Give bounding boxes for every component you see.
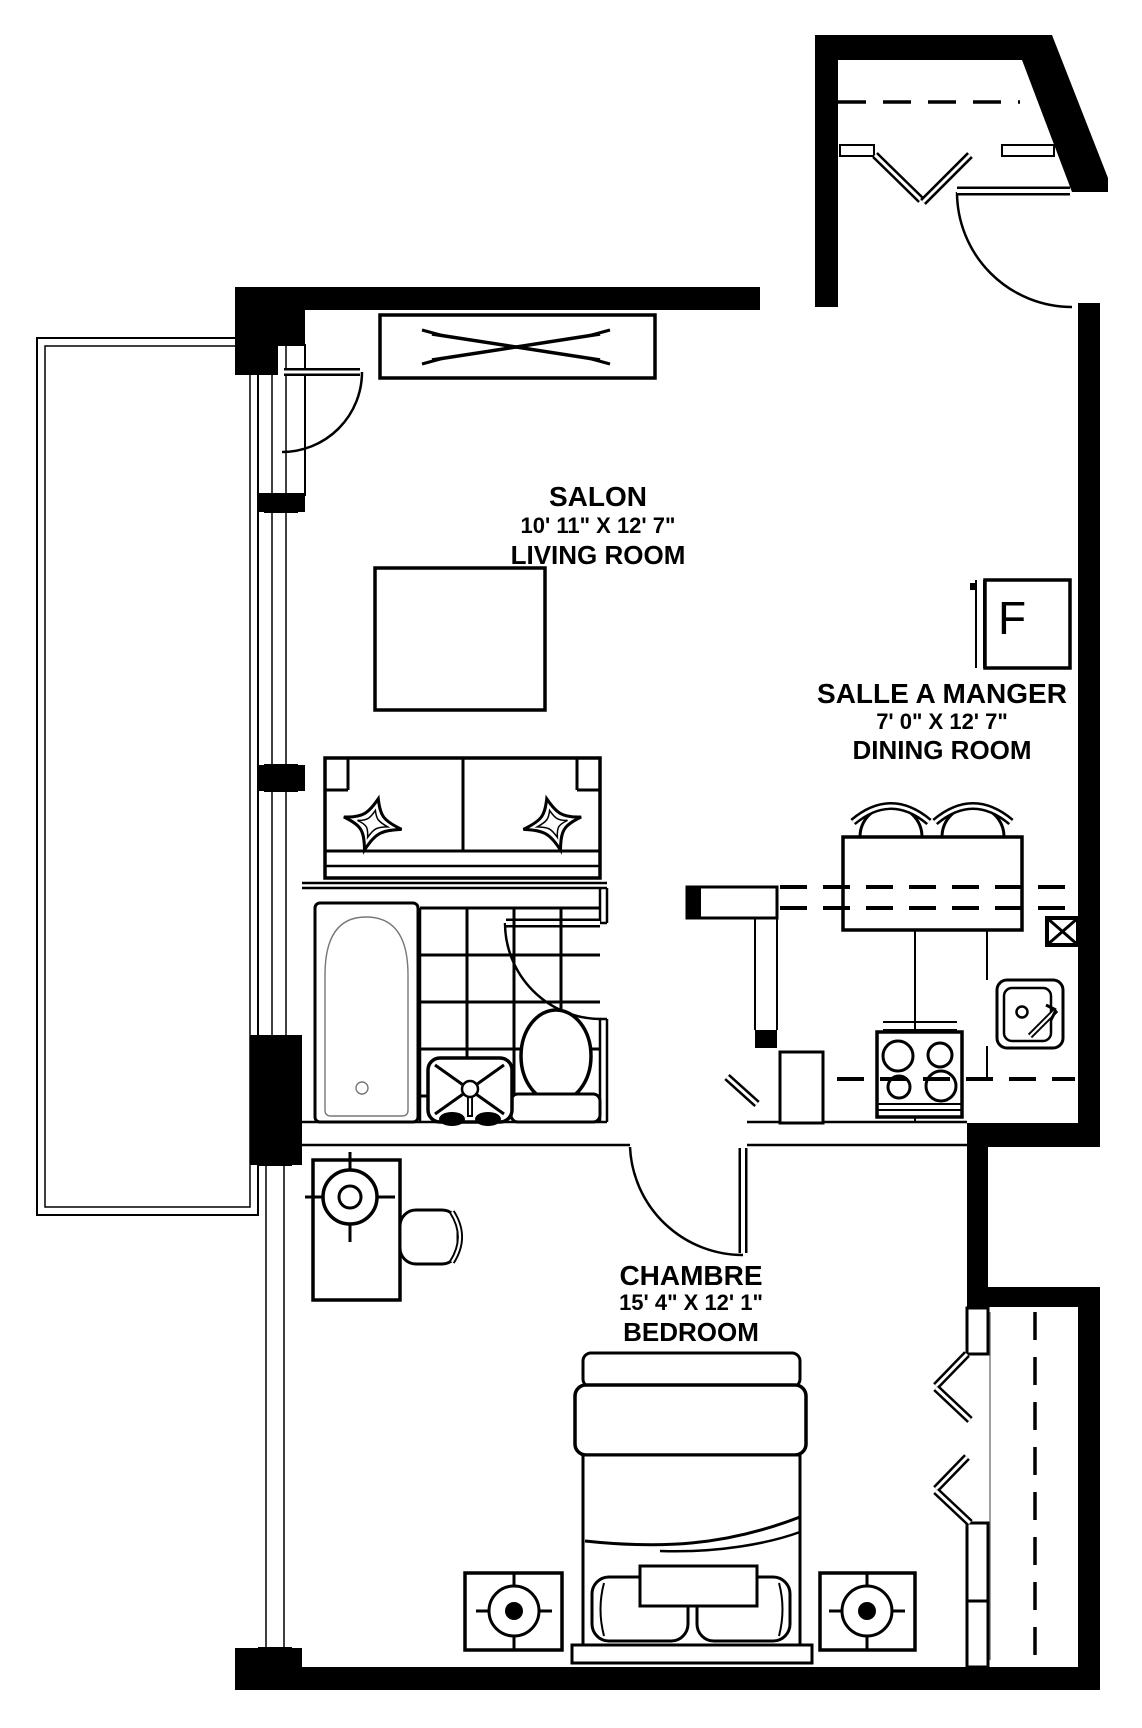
tv-console: [380, 315, 655, 378]
room-name-en: LIVING ROOM: [511, 540, 686, 570]
bathroom: [315, 903, 600, 1126]
living-room-label: SALON 10' 11" X 12' 7" LIVING ROOM: [511, 481, 686, 570]
entry-door: [957, 191, 1072, 307]
bathroom-sink: [428, 1058, 512, 1126]
room-dimensions: 15' 4" X 12' 1": [619, 1290, 763, 1315]
dining-room-label: SALLE A MANGER 7' 0" X 12' 7" DINING ROO…: [817, 678, 1067, 765]
room-dimensions: 7' 0" X 12' 7": [876, 709, 1008, 734]
dining-table: [780, 837, 1075, 930]
room-name-fr: SALLE A MANGER: [817, 678, 1067, 709]
coffee-table: [375, 568, 545, 710]
bathroom-door: [505, 923, 601, 1019]
floor-plan-svg: F: [0, 0, 1142, 1728]
room-name-fr: CHAMBRE: [619, 1260, 762, 1291]
stove: [877, 1022, 962, 1117]
nightstand-left: [465, 1573, 562, 1650]
toilet: [511, 1010, 600, 1122]
hall-closet: [727, 1052, 823, 1123]
floor-plan-page: F: [0, 0, 1142, 1728]
room-name-en: BEDROOM: [623, 1317, 759, 1347]
bed: [572, 1353, 812, 1663]
fridge-label: F: [998, 592, 1026, 644]
bifold-door-entry: [875, 155, 970, 202]
balcony-door: [282, 372, 362, 452]
desk: [305, 1152, 400, 1300]
bifold-door-bedroom: [936, 1354, 970, 1420]
blanket-fold: [575, 1385, 806, 1455]
bedroom-closet: [936, 1308, 1035, 1667]
dining-chair: [935, 806, 1011, 837]
vent-box-icon: [1047, 918, 1078, 945]
throw-blanket: [640, 1566, 757, 1606]
bathtub: [315, 903, 418, 1122]
nightstand-right: [820, 1573, 915, 1650]
footboard: [583, 1353, 800, 1387]
dining-chair: [853, 806, 929, 837]
bifold-door-bedroom: [936, 1457, 970, 1523]
bedroom-door: [630, 1147, 743, 1255]
desk-chair: [400, 1210, 460, 1264]
room-name-fr: SALON: [549, 481, 647, 512]
sofa: [325, 758, 600, 878]
balcony: [37, 338, 258, 1215]
fridge: F: [970, 580, 1070, 668]
kitchen-sink: [997, 980, 1063, 1048]
west-windows: [258, 345, 305, 1035]
bedroom-window: [258, 1165, 292, 1648]
headboard: [572, 1645, 812, 1663]
room-name-en: DINING ROOM: [852, 735, 1031, 765]
room-dimensions: 10' 11" X 12' 7": [521, 513, 676, 538]
bedroom-label: CHAMBRE 15' 4" X 12' 1" BEDROOM: [619, 1260, 763, 1347]
kitchen: F: [687, 580, 1078, 1123]
